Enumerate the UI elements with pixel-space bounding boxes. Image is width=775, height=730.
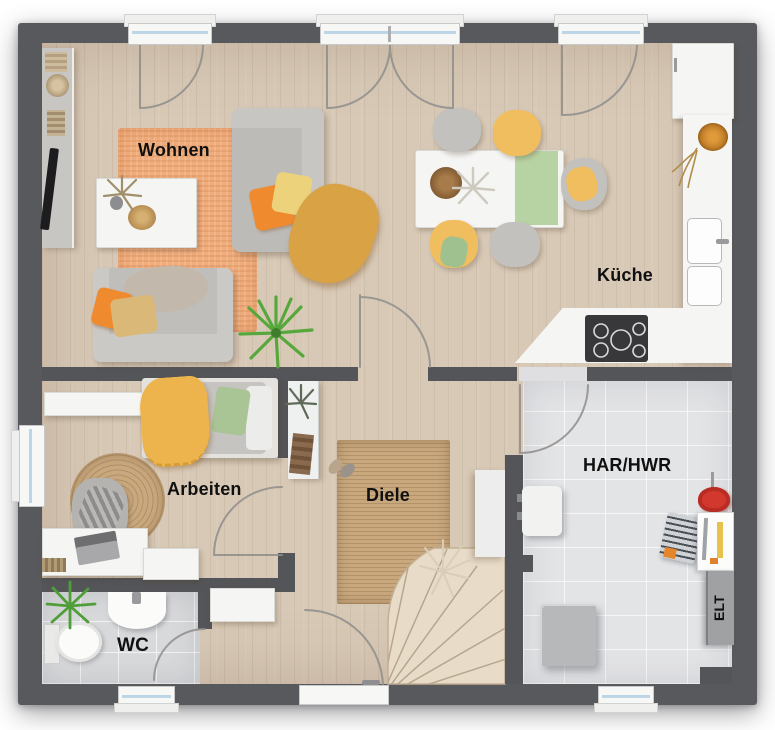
utility-door-arc (520, 385, 588, 453)
room-label-electrical: ELT (711, 595, 727, 621)
room-label-office: Arbeiten (167, 479, 242, 500)
room-label-living: Wohnen (138, 140, 210, 161)
window-top-2 (320, 23, 460, 45)
room-label-utility: HAR/HWR (583, 455, 671, 476)
wc-plant (47, 582, 95, 628)
room-label-wc: WC (117, 635, 149, 657)
plan-overlay-svg (0, 0, 775, 730)
living-hall-door-arc (360, 297, 430, 367)
cooktop-burners (594, 323, 645, 357)
floor-plan-image: Wohnen Küche Arbeiten Diele WC HAR/HWR E… (0, 0, 775, 730)
door-swing-arcs (140, 45, 637, 688)
console-plant (286, 385, 316, 418)
window-door-arc-2-left (327, 45, 390, 108)
window-door-arc-2-right (390, 45, 453, 108)
kitchen-window-door-arc (562, 45, 637, 115)
coffee-table-plant (104, 176, 141, 209)
window-left-office (19, 425, 45, 507)
front-door (299, 685, 389, 705)
front-door-arc (305, 610, 383, 688)
window-top-1 (128, 23, 212, 45)
window-sill-bottom-utility (594, 703, 658, 713)
front-door-handle (362, 680, 380, 685)
table-flowers (453, 168, 494, 203)
window-door-arc-1 (140, 45, 203, 108)
kitchen-branch-decor (672, 148, 697, 188)
room-label-kitchen: Küche (597, 265, 653, 286)
window-top-3 (558, 23, 644, 45)
dried-grass-plant (420, 540, 470, 596)
palm-plant-center (271, 328, 281, 338)
window-sill-bottom-wc (114, 703, 179, 713)
room-label-hallway: Diele (366, 485, 410, 506)
wc-door-arc (154, 629, 205, 680)
